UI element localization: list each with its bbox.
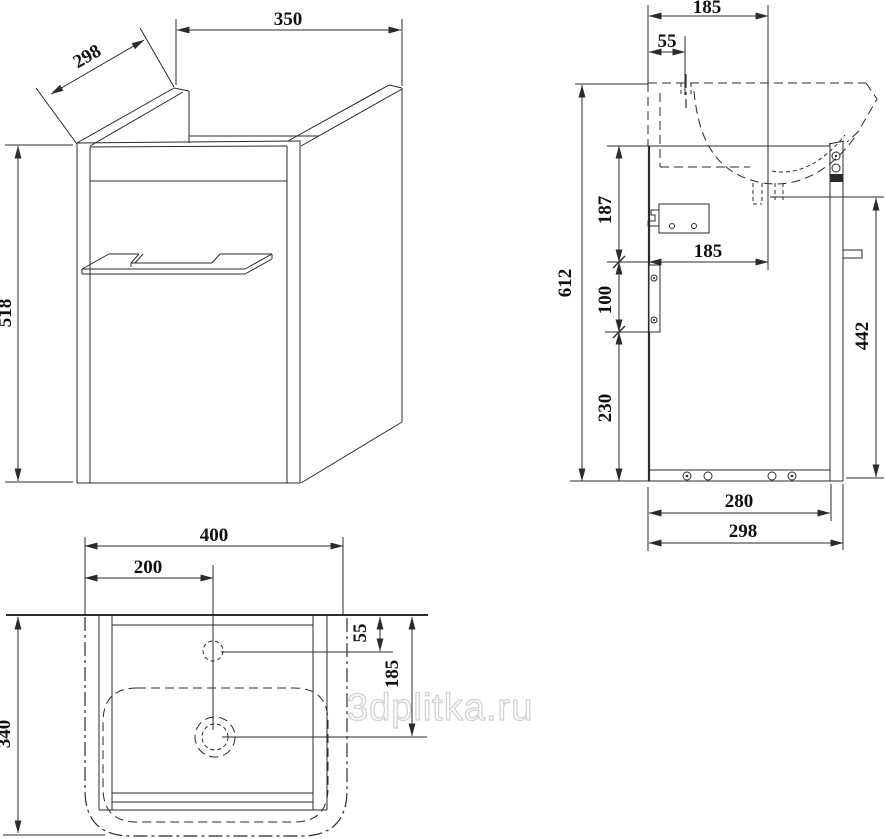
front-view-cabinet (77, 85, 402, 483)
dim-label-side-55: 55 (658, 31, 677, 52)
dim-label-plan-185: 185 (382, 660, 403, 689)
dim-label-plan-340: 340 (0, 720, 15, 749)
dim-label-front-298: 298 (70, 40, 105, 72)
front-dim-height: 518 (0, 145, 73, 482)
front-view: 350 298 518 (0, 9, 402, 483)
dim-label-side-185-mid: 185 (694, 241, 723, 262)
wall-tab (843, 250, 862, 258)
dim-label-side-185-top: 185 (693, 0, 722, 18)
front-view-shelf (82, 254, 272, 274)
dim-label-side-442: 442 (852, 322, 873, 351)
dim-label-plan-200: 200 (134, 557, 163, 578)
dim-label-side-280: 280 (725, 491, 754, 512)
dim-label-side-187: 187 (595, 195, 616, 224)
mounting-bracket-lower (649, 265, 660, 332)
dim-label-plan-55: 55 (350, 624, 371, 643)
bottom-panel-holes (683, 472, 796, 480)
dim-label-side-612: 612 (555, 269, 576, 298)
technical-drawing-svg: 350 298 518 (0, 0, 886, 839)
rail-clip (830, 174, 843, 182)
watermark-text: 3dplitka.ru (347, 687, 533, 729)
dim-label-plan-400: 400 (200, 525, 229, 546)
plan-dims: 400 200 340 55 185 (0, 525, 412, 835)
technical-drawing-page: 350 298 518 (0, 0, 886, 839)
dim-label-side-230: 230 (595, 394, 616, 423)
dim-label-front-518: 518 (0, 299, 16, 328)
plan-view: 400 200 340 55 185 (0, 525, 428, 836)
dim-label-side-100: 100 (595, 286, 616, 315)
front-dim-width: 350 (176, 9, 402, 86)
dim-label-side-298: 298 (729, 521, 758, 542)
dim-label-front-350: 350 (274, 9, 303, 30)
mounting-bracket-upper (648, 204, 709, 233)
side-view: 185 55 612 187 100 230 185 442 (555, 0, 884, 551)
